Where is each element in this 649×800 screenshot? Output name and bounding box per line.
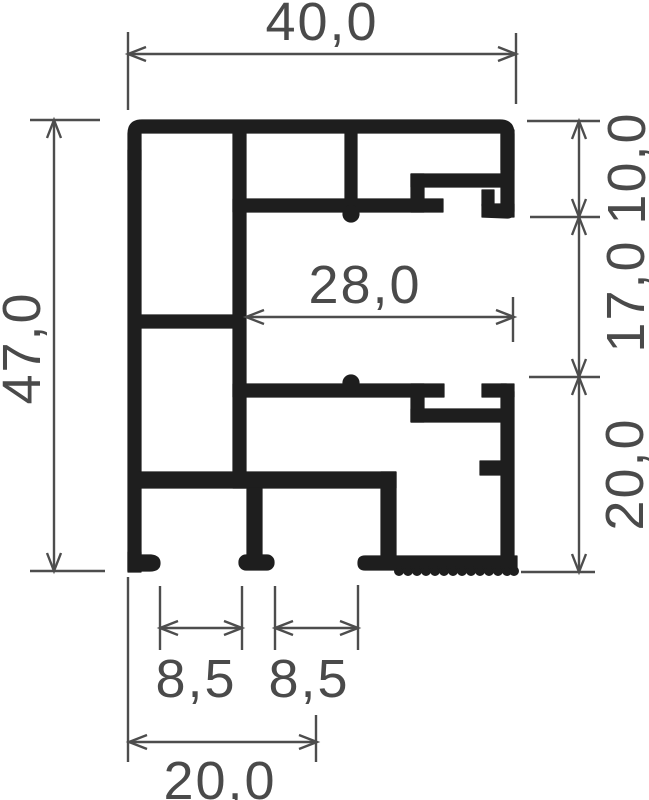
svg-text:20,0: 20,0 — [163, 751, 276, 800]
svg-text:40,0: 40,0 — [265, 0, 378, 52]
svg-text:17,0: 17,0 — [596, 239, 649, 352]
svg-text:28,0: 28,0 — [308, 255, 421, 315]
svg-text:8,5: 8,5 — [268, 649, 349, 709]
svg-text:20,0: 20,0 — [595, 417, 649, 530]
svg-text:10,0: 10,0 — [597, 111, 649, 224]
svg-text:47,0: 47,0 — [0, 291, 52, 404]
svg-text:8,5: 8,5 — [155, 649, 236, 709]
